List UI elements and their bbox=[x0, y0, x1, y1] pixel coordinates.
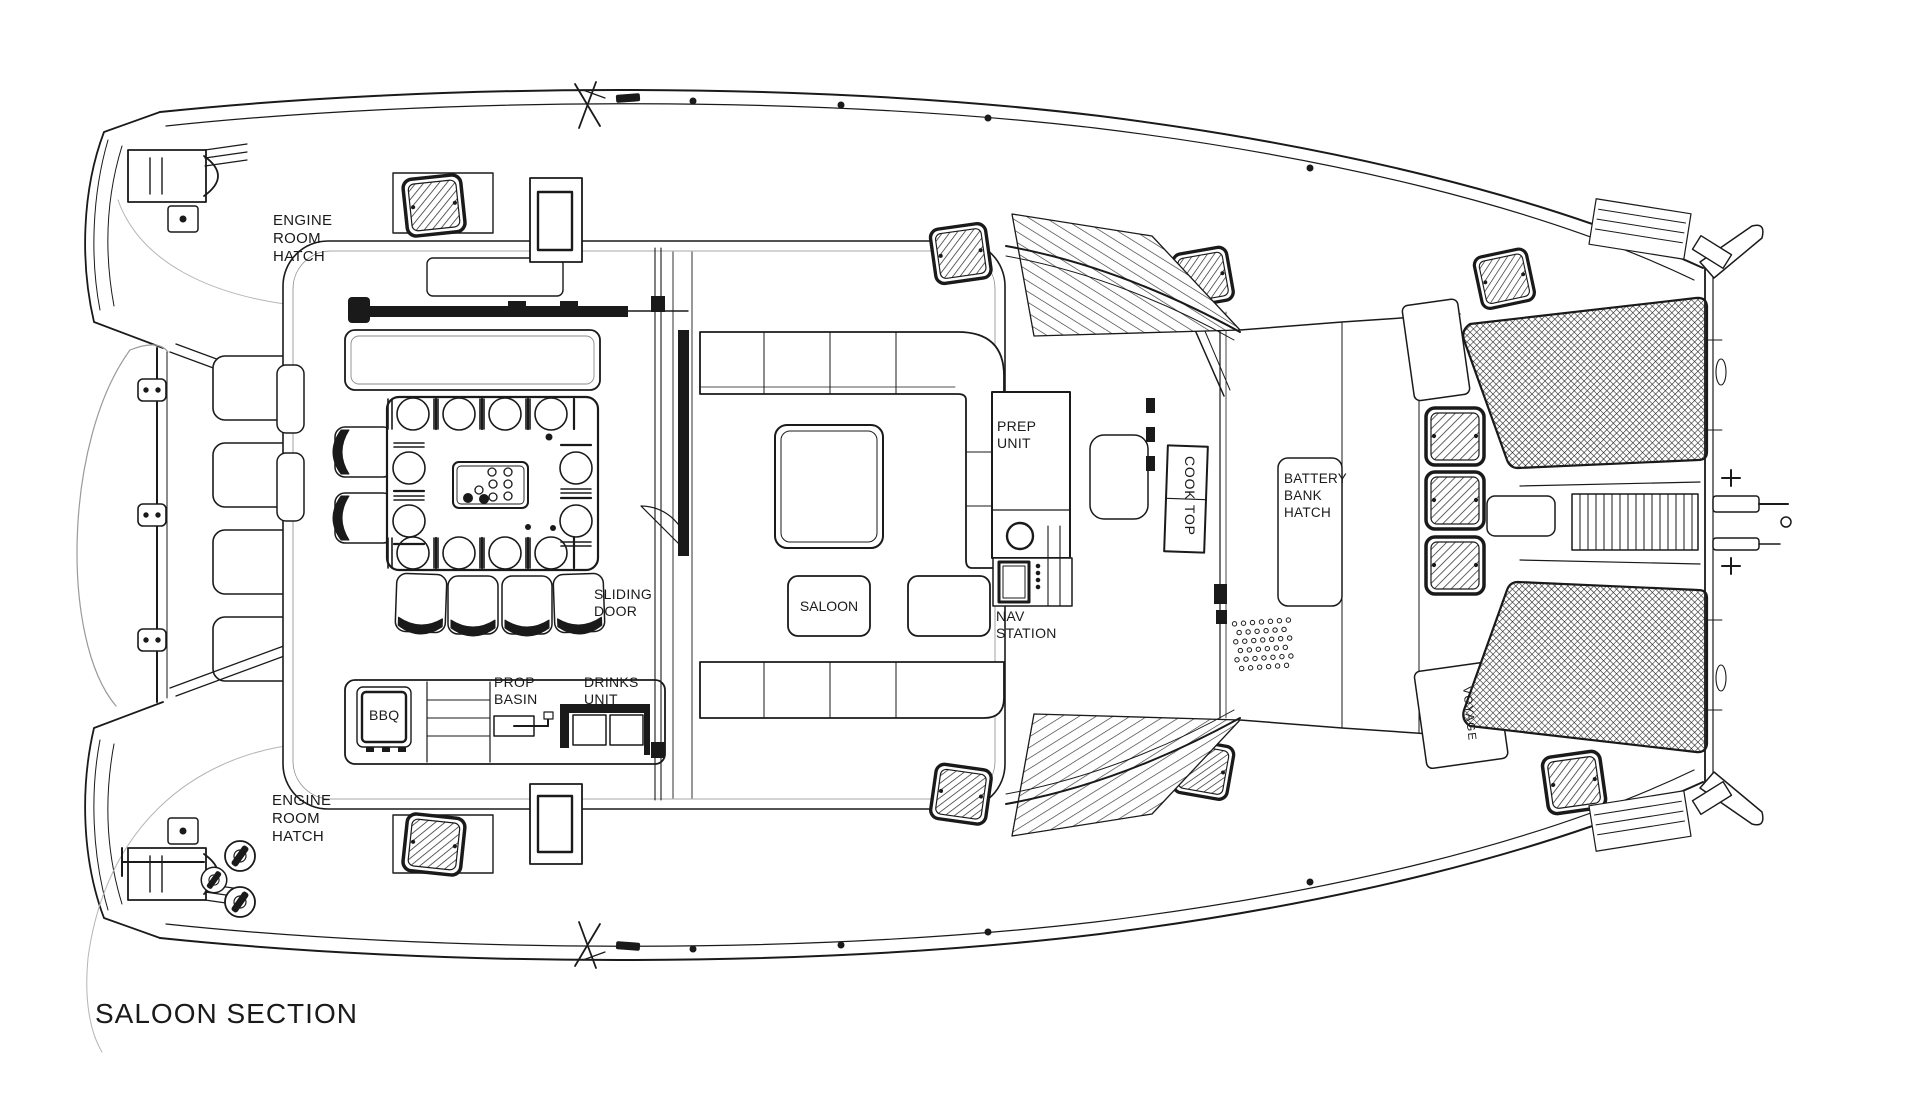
drawing-title: SALOON SECTION bbox=[95, 998, 358, 1030]
galley-nav-area bbox=[992, 304, 1294, 718]
label-nav-station: NAV STATION bbox=[996, 608, 1057, 642]
label-sliding-door: SLIDING DOOR bbox=[594, 586, 652, 620]
deck-plan-drawing bbox=[0, 0, 1920, 1109]
label-bbq: BBQ bbox=[369, 707, 399, 724]
label-prop-basin: PROP BASIN bbox=[494, 674, 538, 708]
label-prep-unit: PREP UNIT bbox=[997, 418, 1036, 452]
label-drinks-unit: DRINKS UNIT bbox=[584, 674, 639, 708]
deck-grille bbox=[1232, 618, 1294, 671]
label-saloon: SALOON bbox=[788, 576, 870, 636]
label-battery-bank-hatch: BATTERY BANK HATCH bbox=[1284, 470, 1347, 521]
label-engine-room-hatch-port: ENGINE ROOM HATCH bbox=[273, 212, 332, 266]
label-cook-top: COOK TOP bbox=[1182, 456, 1198, 536]
label-engine-room-hatch-starboard: ENGINE ROOM HATCH bbox=[272, 792, 331, 846]
catamaran-saloon-deck-plan: ENGINE ROOM HATCH ENGINE ROOM HATCH BBQ … bbox=[0, 0, 1920, 1109]
